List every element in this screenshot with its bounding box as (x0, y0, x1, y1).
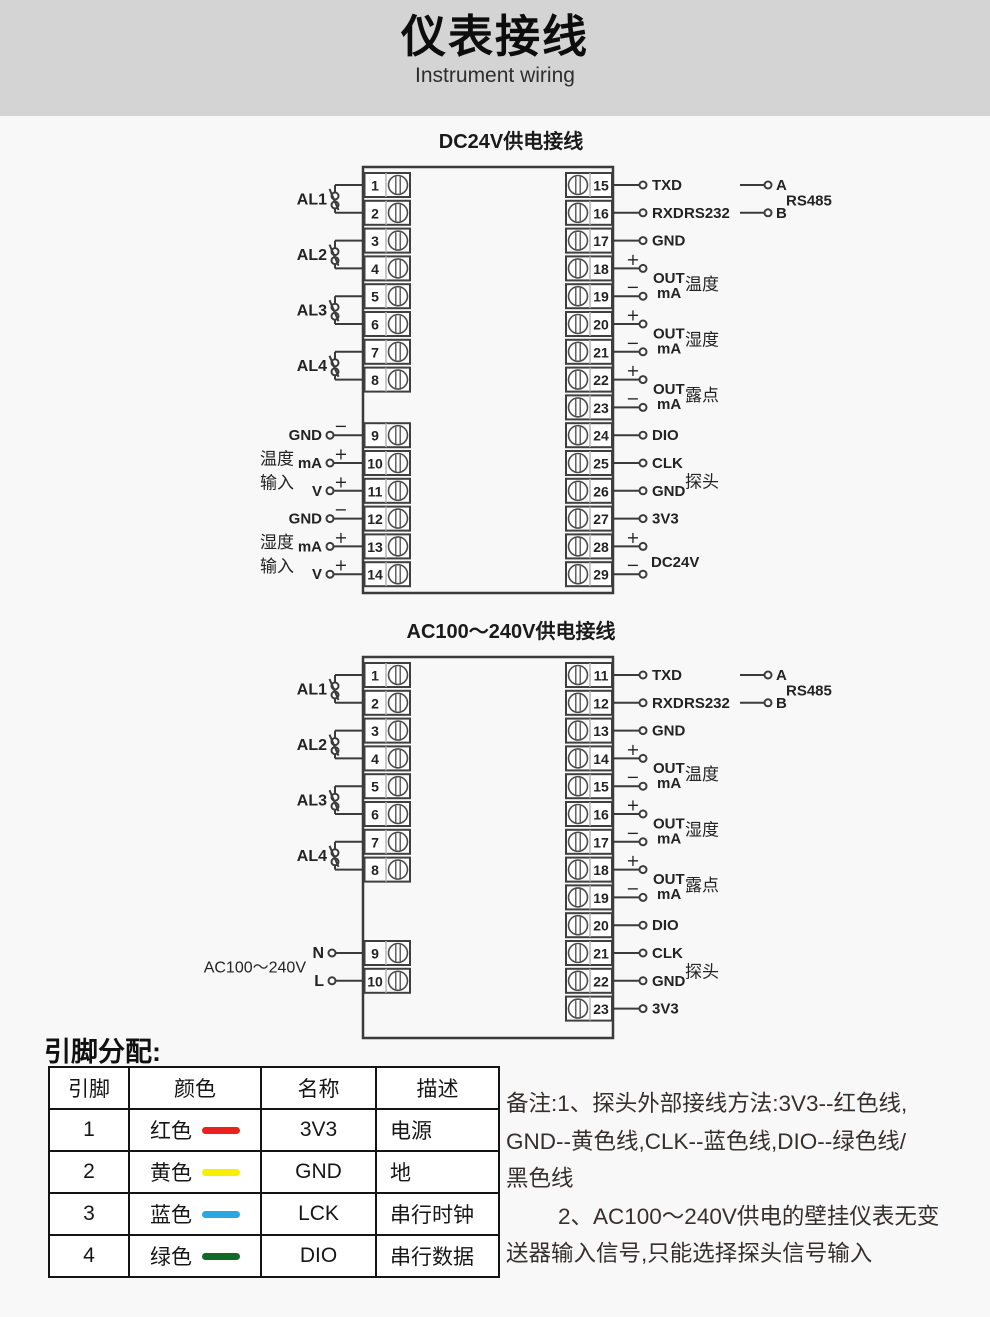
terminal-number: 14 (367, 567, 383, 583)
channel-label: 湿度 (685, 820, 719, 839)
minus-sign: − (626, 556, 639, 575)
input-group-label: 输入 (260, 557, 294, 576)
terminal-11: 11 (365, 479, 411, 503)
connection-GND: GND (613, 973, 686, 990)
wire-color-swatch (202, 1253, 240, 1260)
terminal-number: 17 (593, 834, 609, 850)
alarm-label: AL4 (297, 848, 327, 865)
terminal-7: 7 (365, 830, 411, 854)
terminal-29: 29 (566, 562, 612, 586)
terminal-10: 10 (365, 969, 411, 993)
channel-label: 露点 (685, 876, 719, 895)
wire-color-swatch (202, 1127, 240, 1134)
terminal-12: 12 (365, 507, 411, 531)
screw-terminal-icon (569, 537, 588, 556)
unit-label: mA (657, 830, 681, 847)
terminal-28: 28 (566, 534, 612, 558)
terminal-15: 15 (566, 774, 612, 798)
pin-number: 3 (49, 1193, 129, 1235)
terminal-17: 17 (566, 830, 612, 854)
input-group-label: 温度 (260, 450, 294, 469)
terminal-number: 3 (371, 233, 379, 249)
terminal-number: 6 (371, 807, 379, 823)
pin-row-1: 1 红色 3V3 电源 (49, 1109, 499, 1151)
connection-TXD: TXD (613, 667, 682, 684)
terminal-18: 18 (566, 858, 612, 882)
wire-color-cell: 黄色 (129, 1151, 261, 1193)
screw-terminal-icon (389, 777, 408, 796)
screw-terminal-icon (569, 398, 588, 417)
screw-terminal-icon (569, 509, 588, 528)
terminal-number: 8 (371, 862, 379, 878)
wire-color-name: 黄色 (150, 1162, 192, 1185)
terminal-number: 29 (593, 567, 609, 583)
terminal-number: 16 (593, 807, 609, 823)
signal-label: GND (652, 233, 686, 250)
terminal-13: 13 (365, 534, 411, 558)
wire-node (640, 1005, 647, 1012)
terminal-number: 1 (371, 668, 379, 684)
signal-name: DIO (261, 1235, 376, 1277)
pin-row-2: 2 黄色 GND 地 (49, 1151, 499, 1193)
polarity-sign: + (334, 445, 347, 464)
terminal-6: 6 (365, 312, 411, 336)
wire-node (640, 265, 647, 272)
terminal-3: 3 (365, 719, 411, 743)
signal-desc: 电源 (376, 1109, 499, 1151)
terminal-23: 23 (566, 395, 612, 419)
signal-label: GND (652, 483, 686, 500)
terminal-8: 8 (365, 368, 411, 392)
wire-node (640, 783, 647, 790)
analog-input-mA-13: mA+ (298, 528, 363, 556)
terminal-number: 5 (371, 289, 379, 305)
terminal-number: 3 (371, 723, 379, 739)
wire-node (329, 977, 336, 984)
screw-terminal-icon (569, 971, 588, 990)
col-header-desc: 描述 (376, 1067, 499, 1109)
screw-terminal-icon (569, 832, 588, 851)
channel-label: 温度 (685, 275, 719, 294)
terminal-14: 14 (566, 746, 612, 770)
minus-sign: − (626, 278, 639, 297)
terminal-number: 21 (593, 946, 609, 962)
wire-node (640, 727, 647, 734)
input-label: V (312, 483, 322, 500)
screw-terminal-icon (389, 509, 408, 528)
screw-terminal-icon (569, 342, 588, 361)
terminal-number: 15 (593, 779, 609, 795)
wire-node (640, 348, 647, 355)
terminal-number: 8 (371, 372, 379, 388)
polarity-sign: + (334, 528, 347, 547)
terminal-number: 18 (593, 261, 609, 277)
col-header-color: 颜色 (129, 1067, 261, 1109)
signal-label: RXD (652, 695, 684, 712)
polarity-sign: − (334, 417, 347, 436)
wire-node (640, 894, 647, 901)
signal-label: 3V3 (652, 511, 679, 528)
page-title: 仪表接线 (0, 0, 990, 63)
terminal-3: 3 (365, 229, 411, 253)
screw-terminal-icon (569, 916, 588, 935)
connection-CLK: CLK (613, 455, 683, 472)
table-header-row: 引脚 颜色 名称 描述 (49, 1067, 499, 1109)
signal-desc: 地 (376, 1151, 499, 1193)
pin-number: 1 (49, 1109, 129, 1151)
terminal-23: 23 (566, 997, 612, 1021)
rs485-group: ABRS485 (740, 667, 832, 712)
minus-sign: − (626, 333, 639, 352)
plus-sign: + (626, 528, 639, 547)
alarm-contact-AL1: AL1 (297, 185, 363, 213)
wire-node (327, 571, 334, 578)
screw-terminal-icon (569, 259, 588, 278)
screw-terminal-icon (569, 454, 588, 473)
terminal-number: 21 (593, 344, 609, 360)
input-label: V (312, 566, 322, 583)
wire-node (640, 838, 647, 845)
note-line: GND--黄色线,CLK--蓝色线,DIO--绿色线/ (506, 1123, 974, 1161)
screw-terminal-icon (389, 832, 408, 851)
screw-terminal-icon (389, 454, 408, 473)
note-line: 备注:1、探头外部接线方法:3V3--红色线, (506, 1085, 974, 1123)
alarm-label: AL3 (297, 793, 327, 810)
pin-row-3: 3 蓝色 LCK 串行时钟 (49, 1193, 499, 1235)
wire-node (640, 293, 647, 300)
pin-number: 4 (49, 1235, 129, 1277)
terminal-19: 19 (566, 885, 612, 909)
alarm-contact-AL3: AL3 (297, 786, 363, 814)
signal-label: TXD (652, 177, 682, 194)
connection-湿度: +−OUTmA湿度 (613, 796, 719, 848)
terminal-number: 13 (367, 539, 383, 555)
analog-input-mA-10: mA+ (298, 445, 363, 473)
probe-label: 探头 (685, 472, 719, 491)
connection-露点: +−OUTmA露点 (613, 851, 719, 903)
screw-terminal-icon (389, 693, 408, 712)
page-header: 仪表接线 Instrument wiring (0, 0, 990, 116)
terminal-number: 10 (367, 973, 383, 989)
wire-node (327, 460, 334, 467)
terminal-number: 23 (593, 400, 609, 416)
terminal-26: 26 (566, 479, 612, 503)
alarm-contact-AL3: AL3 (297, 296, 363, 324)
notes-block: 备注:1、探头外部接线方法:3V3--红色线, GND--黄色线,CLK--蓝色… (506, 1085, 974, 1273)
unit-label: mA (657, 340, 681, 357)
probe-label: 探头 (685, 962, 719, 981)
polarity-sign: − (334, 500, 347, 519)
neutral-label: N (312, 945, 324, 962)
screw-terminal-icon (389, 315, 408, 334)
terminal-number: 18 (593, 862, 609, 878)
minus-sign: − (626, 879, 639, 898)
minus-sign: − (626, 389, 639, 408)
wire-color-cell: 红色 (129, 1109, 261, 1151)
screw-terminal-icon (569, 666, 588, 685)
screw-terminal-icon (389, 971, 408, 990)
minus-sign: − (626, 768, 639, 787)
connection-DC24V: +−DC24V (613, 528, 699, 578)
signal-name: GND (261, 1151, 376, 1193)
connection-露点: +−OUTmA露点 (613, 361, 719, 413)
wire-color-swatch (202, 1211, 240, 1218)
wire-node (327, 432, 334, 439)
polarity-sign: + (334, 472, 347, 491)
terminal-number: 27 (593, 511, 609, 527)
wire-node (765, 209, 772, 216)
wire-node (640, 182, 647, 189)
screw-terminal-icon (389, 481, 408, 500)
signal-name: LCK (261, 1193, 376, 1235)
screw-terminal-icon (389, 231, 408, 250)
terminal-number: 23 (593, 1001, 609, 1017)
terminal-11: 11 (566, 663, 612, 687)
wire-node (640, 515, 647, 522)
terminal-number: 4 (371, 261, 379, 277)
diagram-2: AC100～240V供电接线12345678910111213141516171… (204, 619, 832, 1038)
terminal-number: 12 (367, 511, 383, 527)
connection-DIO: DIO (613, 427, 679, 444)
screw-terminal-icon (569, 777, 588, 796)
diagram-title: DC24V供电接线 (439, 129, 583, 153)
page: 仪表接线 Instrument wiring DC24V供电接线12345678… (0, 0, 990, 1317)
wire-node (765, 182, 772, 189)
screw-terminal-icon (569, 203, 588, 222)
connection-CLK: CLK (613, 945, 683, 962)
terminal-19: 19 (566, 284, 612, 308)
terminal-number: 19 (593, 289, 609, 305)
terminal-1: 1 (365, 173, 411, 197)
terminal-number: 5 (371, 779, 379, 795)
screw-terminal-icon (569, 370, 588, 389)
terminal-number: 11 (594, 668, 609, 684)
wire-color-name: 红色 (150, 1120, 192, 1143)
input-label: GND (289, 511, 323, 528)
alarm-label: AL3 (297, 303, 327, 320)
terminal-6: 6 (365, 802, 411, 826)
wire-color-cell: 蓝色 (129, 1193, 261, 1235)
alarm-contact-AL1: AL1 (297, 675, 363, 703)
analog-input-V-11: V+ (312, 472, 363, 500)
signal-label: DIO (652, 917, 679, 934)
alarm-contact-AL4: AL4 (297, 352, 363, 380)
screw-terminal-icon (569, 315, 588, 334)
signal-label: RXD (652, 205, 684, 222)
power-supply-label: DC24V (651, 554, 699, 571)
screw-terminal-icon (389, 860, 408, 879)
rs485-label: RS485 (786, 682, 832, 699)
alarm-contact-AL2: AL2 (297, 731, 363, 759)
connection-3V3: 3V3 (613, 511, 679, 528)
terminal-7: 7 (365, 340, 411, 364)
connection-温度: +−OUTmA温度 (613, 740, 719, 792)
terminal-number: 2 (371, 695, 379, 711)
plus-sign: + (626, 361, 639, 380)
wire-node (640, 487, 647, 494)
screw-terminal-icon (569, 287, 588, 306)
screw-terminal-icon (389, 805, 408, 824)
terminal-10: 10 (365, 451, 411, 475)
screw-terminal-icon (389, 342, 408, 361)
signal-desc: 串行时钟 (376, 1193, 499, 1235)
terminal-number: 12 (593, 695, 609, 711)
alarm-label: AL2 (297, 247, 327, 264)
channel-label: 露点 (685, 386, 719, 405)
terminal-number: 6 (371, 317, 379, 333)
terminal-22: 22 (566, 368, 612, 392)
terminal-number: 26 (593, 483, 609, 499)
terminal-number: 17 (593, 233, 609, 249)
wire-node (640, 432, 647, 439)
wire-color-name: 绿色 (150, 1246, 192, 1269)
polarity-sign: + (334, 556, 347, 575)
live-label: L (314, 973, 324, 990)
alarm-contact-AL4: AL4 (297, 842, 363, 870)
terminal-number: 14 (593, 751, 609, 767)
screw-terminal-icon (389, 370, 408, 389)
input-group-label: 输入 (260, 474, 294, 493)
terminal-1: 1 (365, 663, 411, 687)
plus-sign: + (626, 250, 639, 269)
wire-node (765, 699, 772, 706)
wire-node (640, 922, 647, 929)
connection-GND: GND (613, 233, 686, 250)
channel-label: 温度 (685, 765, 719, 784)
unit-label: mA (657, 285, 681, 302)
input-label: GND (289, 427, 323, 444)
diagram-title: AC100～240V供电接线 (407, 619, 616, 643)
terminal-24: 24 (566, 423, 612, 447)
col-header-pin: 引脚 (49, 1067, 129, 1109)
terminal-21: 21 (566, 941, 612, 965)
terminal-number: 9 (371, 946, 379, 962)
screw-terminal-icon (569, 481, 588, 500)
screw-terminal-icon (389, 666, 408, 685)
terminal-number: 1 (371, 178, 379, 194)
screw-terminal-icon (569, 565, 588, 584)
terminal-4: 4 (365, 256, 411, 280)
wire-node (329, 950, 336, 957)
wire-node (640, 866, 647, 873)
terminal-2: 2 (365, 201, 411, 225)
screw-terminal-icon (569, 231, 588, 250)
screw-terminal-icon (569, 860, 588, 879)
plus-sign: + (626, 796, 639, 815)
connection-DIO: DIO (613, 917, 679, 934)
signal-label: DIO (652, 427, 679, 444)
rs485-group: ABRS485 (740, 177, 832, 222)
channel-label: 湿度 (685, 330, 719, 349)
pin-number: 2 (49, 1151, 129, 1193)
signal-label: CLK (652, 945, 683, 962)
plus-sign: + (626, 851, 639, 870)
terminal-20: 20 (566, 913, 612, 937)
note-line: 黑色线 (506, 1160, 974, 1198)
signal-label: GND (652, 723, 686, 740)
screw-terminal-icon (389, 426, 408, 445)
col-header-name: 名称 (261, 1067, 376, 1109)
terminal-12: 12 (566, 691, 612, 715)
terminal-9: 9 (365, 423, 411, 447)
wire-node (640, 404, 647, 411)
signal-label: 3V3 (652, 1001, 679, 1018)
wire-node (640, 321, 647, 328)
terminal-13: 13 (566, 719, 612, 743)
unit-label: mA (657, 396, 681, 413)
signal-desc: 串行数据 (376, 1235, 499, 1277)
plus-sign: + (626, 306, 639, 325)
connection-TXD: TXD (613, 177, 682, 194)
page-subtitle: Instrument wiring (0, 63, 990, 89)
wire-node (640, 950, 647, 957)
wire-node (327, 515, 334, 522)
connection-RXD: RXDRS232 (613, 205, 730, 222)
connection-温度: +−OUTmA温度 (613, 250, 719, 302)
wire-color-name: 蓝色 (150, 1204, 192, 1227)
screw-terminal-icon (569, 749, 588, 768)
alarm-label: AL1 (297, 191, 327, 208)
screw-terminal-icon (389, 537, 408, 556)
connection-GND: GND (613, 483, 686, 500)
input-group-label: 湿度 (260, 533, 294, 552)
wire-node (640, 755, 647, 762)
signal-label: GND (652, 973, 686, 990)
note-line: 2、AC100～240V供电的壁挂仪表无变 (506, 1198, 974, 1236)
unit-label: mA (657, 886, 681, 903)
terminal-15: 15 (566, 173, 612, 197)
screw-terminal-icon (389, 749, 408, 768)
terminal-number: 16 (593, 205, 609, 221)
terminal-number: 10 (367, 456, 383, 472)
terminal-number: 9 (371, 428, 379, 444)
screw-terminal-icon (569, 888, 588, 907)
terminal-18: 18 (566, 256, 612, 280)
terminal-number: 25 (593, 456, 609, 472)
signal-label: CLK (652, 455, 683, 472)
screw-terminal-icon (389, 259, 408, 278)
wire-node (640, 672, 647, 679)
terminal-17: 17 (566, 229, 612, 253)
alarm-contact-AL2: AL2 (297, 241, 363, 269)
terminal-number: 7 (371, 834, 379, 850)
terminal-5: 5 (365, 284, 411, 308)
terminal-2: 2 (365, 691, 411, 715)
diagram-1: DC24V供电接线1234567891011121314151617181920… (260, 129, 832, 593)
analog-input-GND-9: GND− (289, 417, 363, 445)
terminal-9: 9 (365, 941, 411, 965)
screw-terminal-icon (389, 721, 408, 740)
terminal-number: 15 (593, 178, 609, 194)
alarm-label: AL1 (297, 681, 327, 698)
pin-row-4: 4 绿色 DIO 串行数据 (49, 1235, 499, 1277)
wire-node (640, 811, 647, 818)
analog-input-GND-12: GND− (289, 500, 363, 527)
wire-node (640, 699, 647, 706)
interface-tag: RS232 (684, 205, 730, 222)
wire-color-cell: 绿色 (129, 1235, 261, 1277)
screw-terminal-icon (569, 426, 588, 445)
screw-terminal-icon (389, 203, 408, 222)
plus-sign: + (626, 740, 639, 759)
pin-assignment-table: 引脚 颜色 名称 描述 1 红色 3V3 电源 2 黄色 GND 地 3 蓝色 (48, 1066, 500, 1278)
terminal-number: 28 (593, 539, 609, 555)
screw-terminal-icon (389, 287, 408, 306)
wire-node (640, 209, 647, 216)
wire-node (765, 672, 772, 679)
input-label: mA (298, 538, 322, 555)
wire-node (640, 460, 647, 467)
